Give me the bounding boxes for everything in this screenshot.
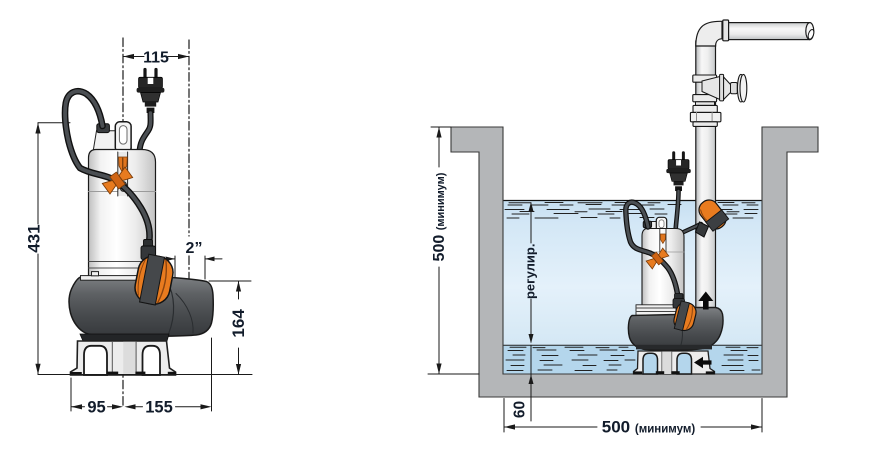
svg-text:500 (минимум): 500 (минимум) bbox=[602, 418, 696, 437]
svg-text:60: 60 bbox=[512, 401, 529, 418]
svg-text:431: 431 bbox=[25, 224, 44, 252]
svg-text:95: 95 bbox=[87, 398, 105, 416]
svg-text:164: 164 bbox=[229, 309, 248, 338]
svg-text:115: 115 bbox=[143, 50, 169, 67]
svg-text:регулир.: регулир. bbox=[523, 244, 538, 299]
svg-text:155: 155 bbox=[145, 398, 173, 416]
svg-text:2”: 2” bbox=[186, 240, 203, 257]
svg-text:500 (минимум): 500 (минимум) bbox=[431, 172, 448, 261]
